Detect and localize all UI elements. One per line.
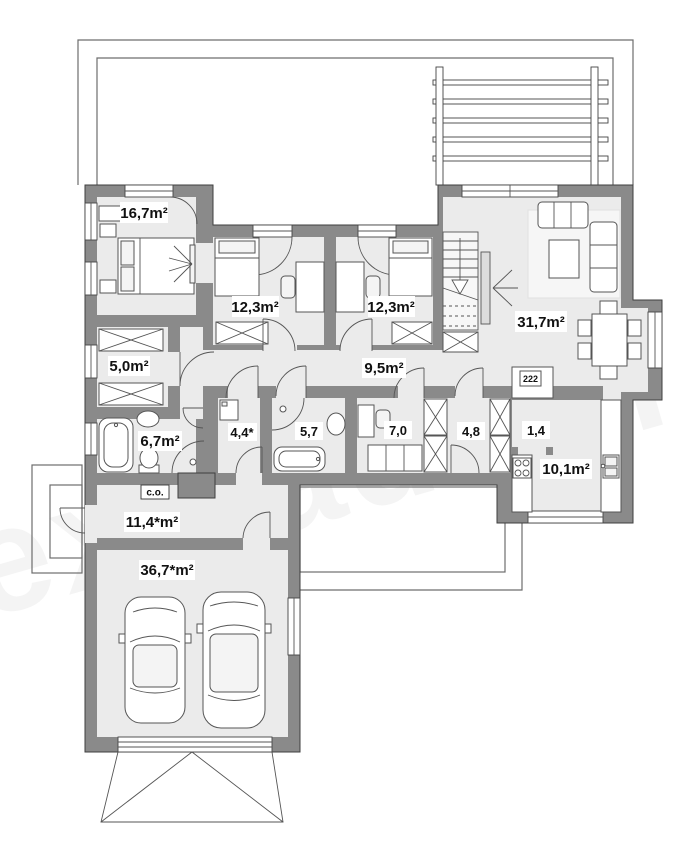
window-icon bbox=[253, 225, 292, 237]
svg-text:9,5m²: 9,5m² bbox=[364, 360, 403, 377]
hallway-arm bbox=[180, 327, 203, 419]
svg-text:12,3m²: 12,3m² bbox=[367, 299, 415, 316]
room-label-office: 7,0 bbox=[384, 421, 412, 439]
svg-text:5,0m²: 5,0m² bbox=[109, 358, 148, 375]
svg-text:7,0: 7,0 bbox=[389, 423, 407, 438]
kitchen-sink-icon bbox=[601, 455, 619, 478]
window-icon bbox=[462, 185, 558, 197]
wardrobe-icon bbox=[424, 399, 447, 472]
svg-text:10,1m²: 10,1m² bbox=[542, 461, 590, 478]
boiler-label-text: c.o. bbox=[146, 488, 163, 499]
bathtub-icon bbox=[274, 447, 325, 471]
wardrobe-icon bbox=[392, 322, 432, 344]
room-label-bedroom-1: 16,7m² bbox=[120, 202, 168, 223]
car-icon bbox=[119, 597, 191, 723]
coffee-table-icon bbox=[549, 240, 579, 278]
svg-text:1,4: 1,4 bbox=[527, 423, 546, 438]
window-icon bbox=[528, 511, 603, 523]
svg-text:16,7m²: 16,7m² bbox=[120, 205, 168, 222]
window-icon bbox=[85, 203, 97, 240]
room-label-closet: 5,0m² bbox=[108, 356, 150, 376]
bathtub-icon bbox=[99, 418, 133, 472]
single-bed-icon bbox=[389, 238, 432, 296]
room-label-kitchen: 10,1m² bbox=[540, 459, 592, 479]
window-icon bbox=[358, 225, 396, 237]
wardrobe-icon bbox=[490, 399, 510, 472]
car-icon bbox=[197, 592, 271, 728]
svg-text:36,7*m²: 36,7*m² bbox=[140, 562, 193, 579]
window-icon bbox=[85, 345, 97, 378]
sink-icon bbox=[137, 411, 159, 427]
room-label-hall: 4,8 bbox=[457, 422, 485, 440]
room-label-bedroom-2: 12,3m² bbox=[231, 296, 279, 317]
pergola-icon bbox=[433, 67, 608, 185]
room-label-utility-room: 11,4*m² bbox=[124, 512, 180, 532]
wardrobe-icon bbox=[216, 322, 268, 344]
washer-icon bbox=[220, 400, 238, 420]
room-label-hallway: 9,5m² bbox=[362, 358, 406, 378]
roof-outline-outer bbox=[78, 40, 633, 185]
window-icon bbox=[85, 262, 97, 295]
svg-text:12,3m²: 12,3m² bbox=[231, 299, 279, 316]
driveway-icon bbox=[101, 752, 283, 822]
room-label-bathroom-1: 6,7m² bbox=[138, 431, 182, 451]
room-label-bathroom-2: 5,7 bbox=[295, 422, 323, 440]
floor-plan-page: extradom bbox=[0, 0, 692, 860]
toilet-icon bbox=[139, 448, 159, 473]
boiler-label: c.o. bbox=[141, 485, 169, 499]
room-label-pantry: 1,4 bbox=[522, 421, 550, 439]
room-label-living-room: 31,7m² bbox=[515, 311, 567, 332]
svg-text:4,8: 4,8 bbox=[462, 424, 480, 439]
svg-text:4,4*: 4,4* bbox=[230, 425, 254, 440]
room-label-bedroom-3: 12,3m² bbox=[367, 296, 415, 317]
garage-door-icon bbox=[118, 737, 272, 752]
sink-icon bbox=[327, 413, 345, 435]
single-bed-icon bbox=[215, 238, 259, 296]
floor-plan-canvas: extradom bbox=[0, 0, 692, 860]
room-label-garage: 36,7*m² bbox=[139, 560, 195, 580]
svg-text:31,7m²: 31,7m² bbox=[517, 314, 565, 331]
fridge-icon: 222 bbox=[512, 367, 553, 398]
window-icon bbox=[125, 185, 173, 197]
window-icon bbox=[85, 423, 97, 455]
staircase-icon bbox=[443, 232, 478, 352]
svg-text:11,4*m²: 11,4*m² bbox=[126, 514, 179, 531]
svg-text:6,7m²: 6,7m² bbox=[140, 433, 179, 450]
svg-text:5,7: 5,7 bbox=[300, 424, 318, 439]
daybed-icon bbox=[368, 445, 422, 471]
room-label-vestibule: 4,4* bbox=[228, 423, 257, 441]
cooktop-icon bbox=[513, 458, 531, 478]
window-icon bbox=[288, 598, 300, 655]
appliance-label: 222 bbox=[523, 374, 538, 384]
chimney-block bbox=[178, 473, 215, 498]
window-icon bbox=[648, 312, 662, 368]
